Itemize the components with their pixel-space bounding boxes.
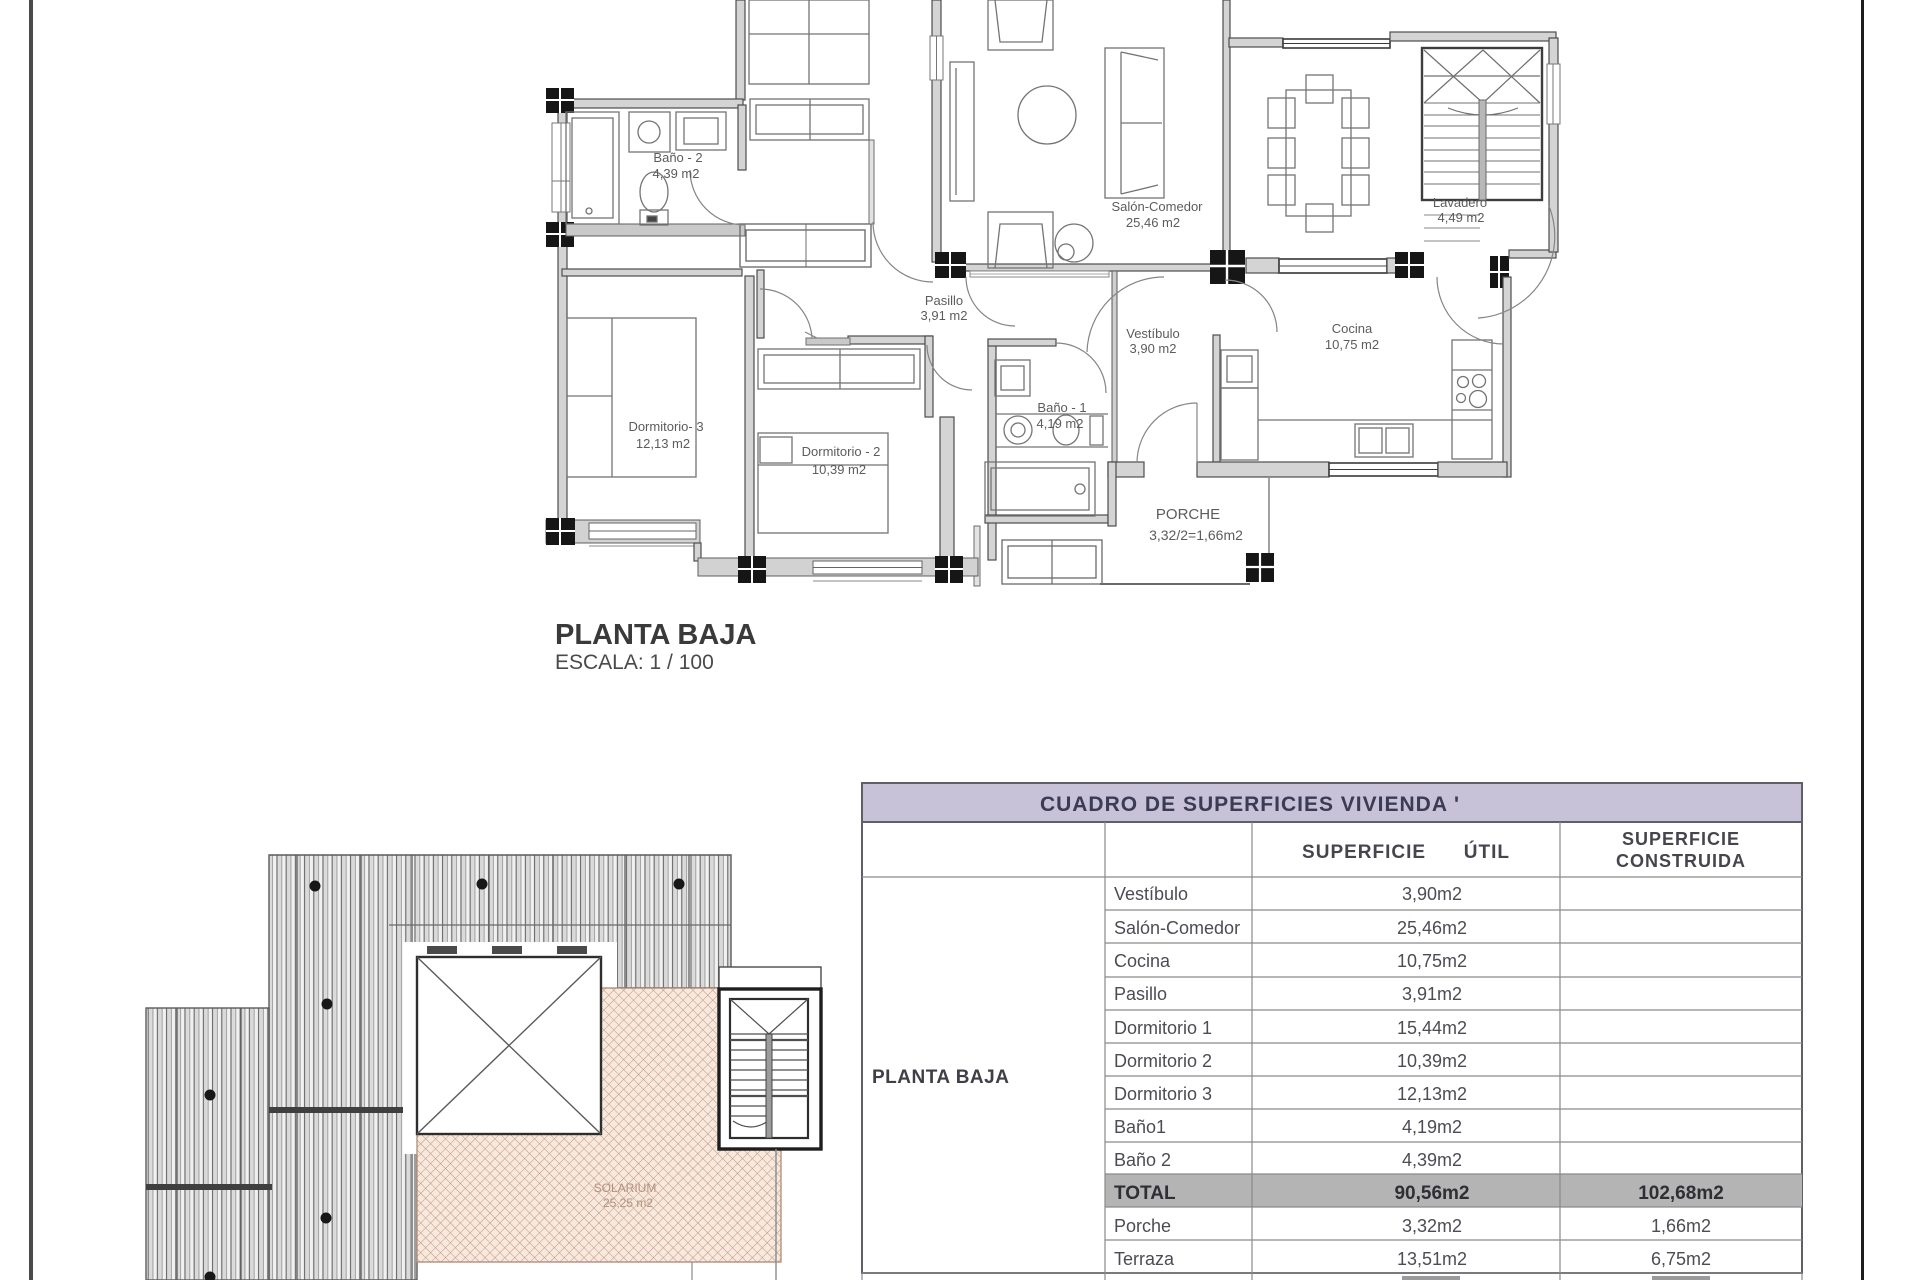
svg-text:CONSTRUIDA: CONSTRUIDA: [1616, 851, 1746, 871]
svg-text:Pasillo: Pasillo: [1114, 984, 1167, 1004]
svg-text:SUPERFICIE: SUPERFICIE: [1622, 829, 1740, 849]
svg-text:SOLARIUM: SOLARIUM: [594, 1181, 657, 1195]
svg-text:TOTAL: TOTAL: [1114, 1183, 1176, 1204]
svg-text:PLANTA BAJA: PLANTA BAJA: [872, 1067, 1009, 1088]
svg-text:Dormitorio- 3: Dormitorio- 3: [628, 419, 703, 434]
svg-text:Baño - 1: Baño - 1: [1037, 400, 1086, 415]
svg-text:4,19m2: 4,19m2: [1402, 1117, 1462, 1137]
svg-text:Vestíbulo: Vestíbulo: [1114, 884, 1188, 904]
svg-text:ESCALA: 1 / 100: ESCALA: 1 / 100: [555, 651, 714, 674]
svg-text:3,91m2: 3,91m2: [1402, 984, 1462, 1004]
svg-text:1,66m2: 1,66m2: [1651, 1216, 1711, 1236]
svg-text:Dormitorio 2: Dormitorio 2: [1114, 1051, 1212, 1071]
svg-text:Dormitorio 3: Dormitorio 3: [1114, 1084, 1212, 1104]
svg-text:3,32m2: 3,32m2: [1402, 1216, 1462, 1236]
svg-text:Lavadero: Lavadero: [1433, 195, 1487, 210]
svg-text:Vestíbulo: Vestíbulo: [1126, 326, 1180, 341]
svg-text:Terraza: Terraza: [1114, 1249, 1175, 1269]
svg-text:25,25 m2: 25,25 m2: [603, 1196, 653, 1210]
svg-text:6,75m2: 6,75m2: [1651, 1249, 1711, 1269]
svg-text:15,44m2: 15,44m2: [1397, 1018, 1467, 1038]
svg-text:10,75m2: 10,75m2: [1397, 951, 1467, 971]
svg-text:PORCHE: PORCHE: [1156, 506, 1220, 523]
svg-text:4,49 m2: 4,49 m2: [1438, 210, 1485, 225]
svg-text:Baño - 2: Baño - 2: [653, 150, 702, 165]
svg-text:13,51m2: 13,51m2: [1397, 1249, 1467, 1269]
svg-text:12,13m2: 12,13m2: [1397, 1084, 1467, 1104]
svg-text:25,46 m2: 25,46 m2: [1126, 215, 1180, 230]
svg-text:Dormitorio - 2: Dormitorio - 2: [802, 444, 881, 459]
svg-text:Pasillo: Pasillo: [925, 293, 963, 308]
svg-text:4,39m2: 4,39m2: [1402, 1150, 1462, 1170]
svg-text:Salón-Comedor: Salón-Comedor: [1111, 199, 1203, 214]
svg-text:Salón-Comedor: Salón-Comedor: [1114, 918, 1240, 938]
svg-text:102,68m2: 102,68m2: [1638, 1183, 1724, 1204]
svg-text:10,39m2: 10,39m2: [1397, 1051, 1467, 1071]
svg-text:Cocina: Cocina: [1114, 951, 1171, 971]
svg-text:SUPERFICIE ÚTIL: SUPERFICIE ÚTIL: [1302, 841, 1510, 863]
svg-text:25,46m2: 25,46m2: [1397, 918, 1467, 938]
svg-text:Baño 2: Baño 2: [1114, 1150, 1171, 1170]
svg-text:Porche: Porche: [1114, 1216, 1171, 1236]
svg-text:4,39 m2: 4,39 m2: [653, 166, 700, 181]
svg-text:10,75 m2: 10,75 m2: [1325, 337, 1379, 352]
svg-text:3,32/2=1,66m2: 3,32/2=1,66m2: [1149, 527, 1243, 543]
svg-text:4,19 m2: 4,19 m2: [1037, 416, 1084, 431]
svg-text:10,39 m2: 10,39 m2: [812, 462, 866, 477]
svg-text:Dormitorio 1: Dormitorio 1: [1114, 1018, 1212, 1038]
svg-text:12,13 m2: 12,13 m2: [636, 436, 690, 451]
svg-text:3,90 m2: 3,90 m2: [1130, 341, 1177, 356]
svg-text:Baño1: Baño1: [1114, 1117, 1166, 1137]
svg-text:CUADRO DE SUPERFICIES VIVIEND: CUADRO DE SUPERFICIES VIVIENDA ': [1040, 793, 1460, 816]
svg-text:Cocina: Cocina: [1332, 321, 1373, 336]
svg-text:90,56m2: 90,56m2: [1394, 1183, 1469, 1204]
svg-text:3,91 m2: 3,91 m2: [921, 308, 968, 323]
svg-text:PLANTA BAJA: PLANTA BAJA: [555, 619, 756, 651]
svg-text:3,90m2: 3,90m2: [1402, 884, 1462, 904]
